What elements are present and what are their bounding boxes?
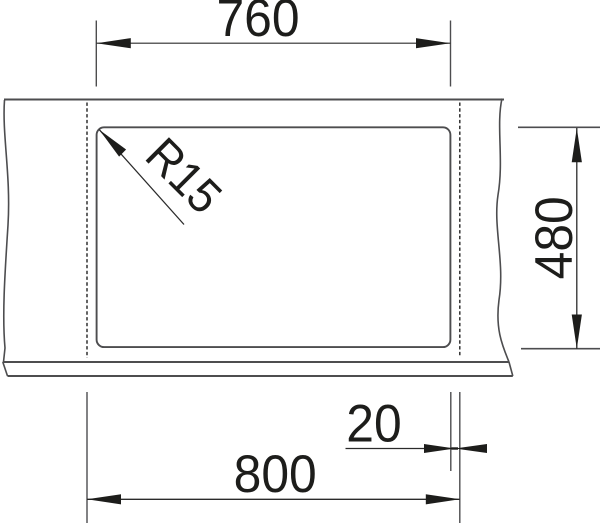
svg-text:800: 800: [234, 443, 317, 503]
svg-text:20: 20: [346, 393, 401, 453]
svg-text:480: 480: [524, 196, 584, 279]
svg-text:760: 760: [216, 0, 299, 47]
